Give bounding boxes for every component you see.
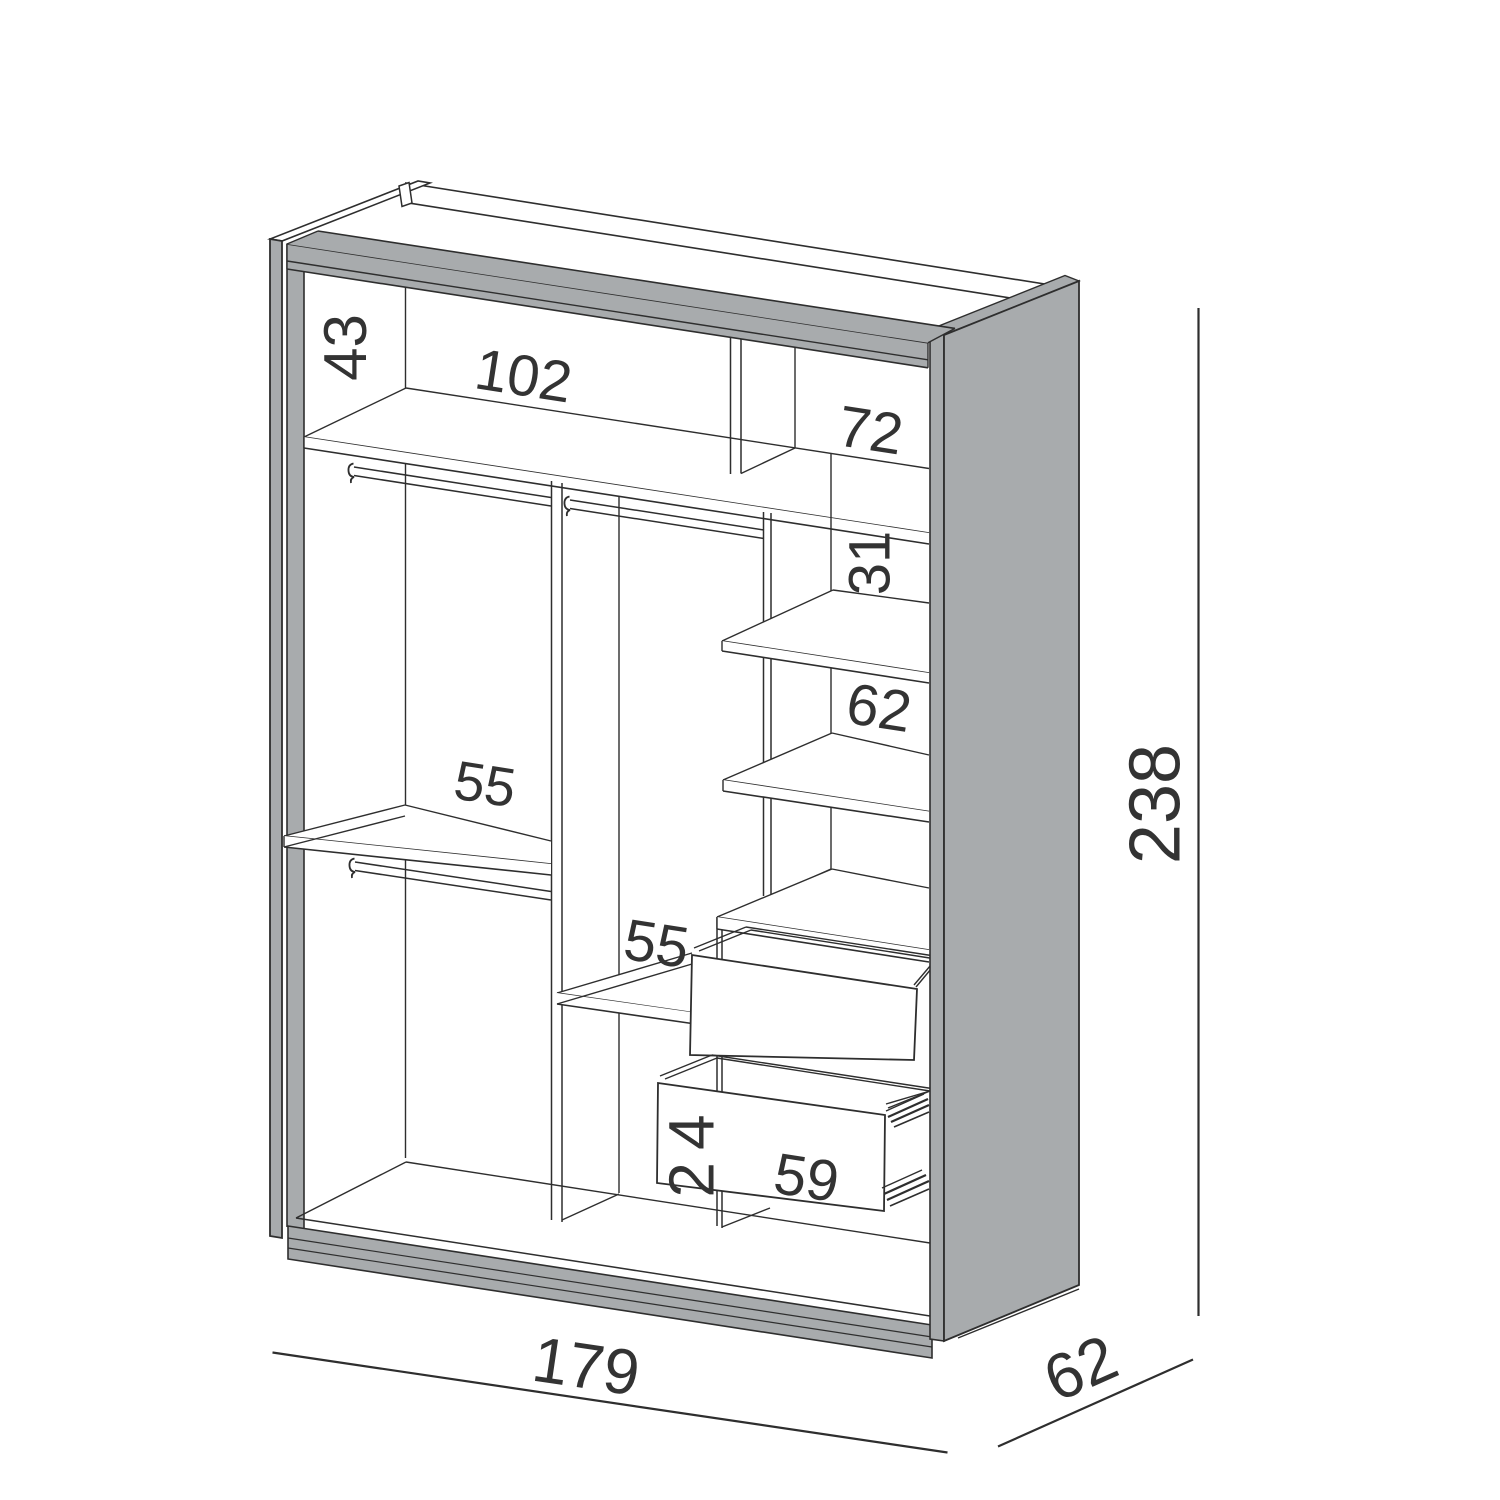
svg-text:55: 55 [620,907,694,981]
svg-text:24: 24 [656,1102,728,1197]
svg-text:31: 31 [838,531,903,596]
svg-text:72: 72 [834,393,908,467]
svg-text:55: 55 [450,749,520,820]
svg-text:62: 62 [842,671,916,745]
svg-text:59: 59 [770,1141,844,1215]
svg-text:179: 179 [528,1323,644,1410]
svg-text:238: 238 [1116,744,1196,864]
svg-text:43: 43 [312,314,379,381]
